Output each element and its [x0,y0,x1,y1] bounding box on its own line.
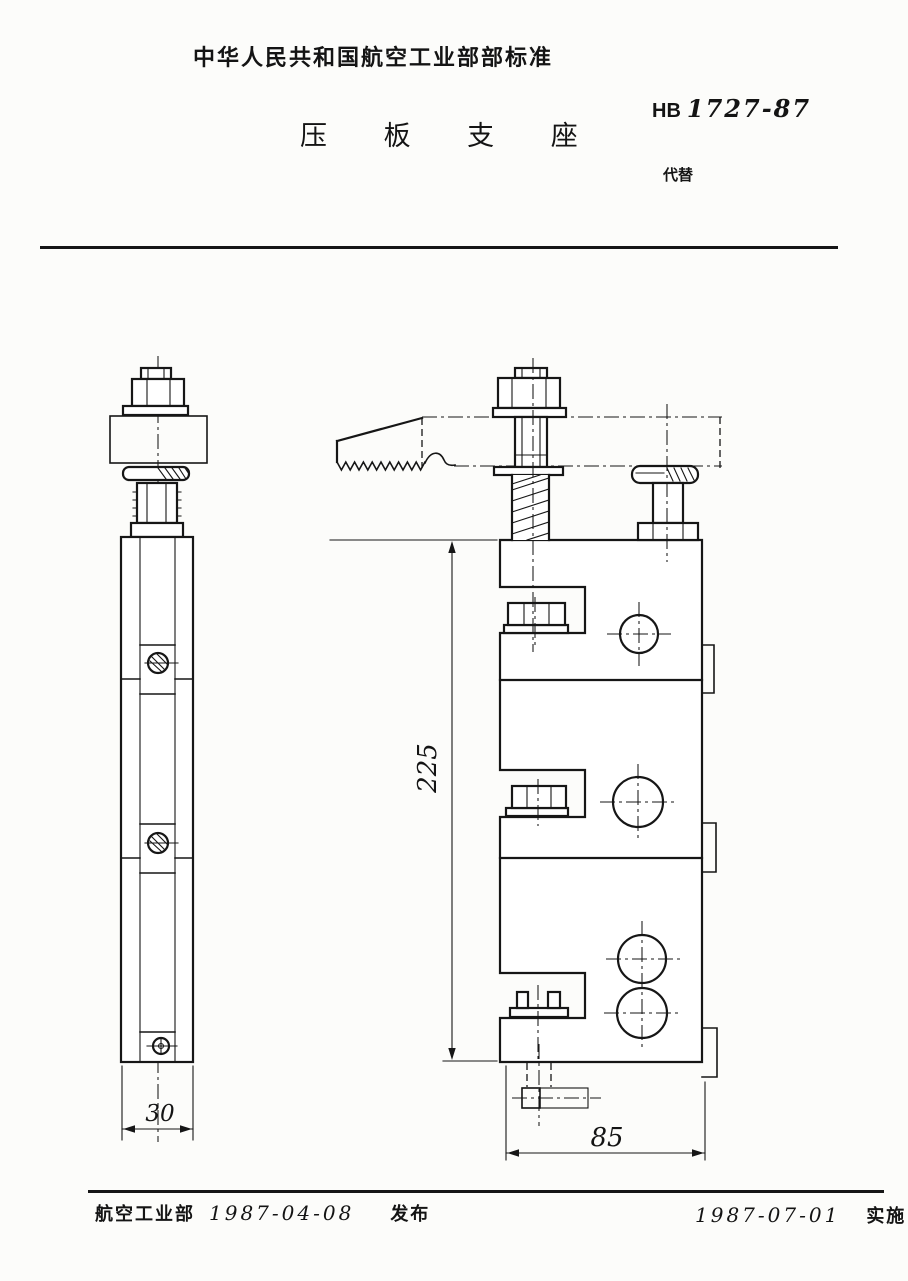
clamp-plate-chain-lines [422,417,722,466]
serrated-clamp-end [337,418,455,470]
interlock-tabs [702,645,717,1077]
clamp-plate-cut-marks [422,417,720,468]
dim-front-width-label: 85 [590,1123,623,1153]
clamp-bolt-side [123,368,188,415]
dim-height-label: 225 [413,743,443,794]
knurled-nut-side [123,467,189,480]
knurled-screw-post [632,466,698,540]
clamp-bolt-front [493,368,566,540]
dimension-85: 85 [506,1066,705,1160]
issue-date: 1987-04-08 [209,1201,354,1225]
dim-side-width-label: 30 [145,1101,174,1127]
footer-issue-block: 航空工业部 1987-04-08 发布 [95,1200,430,1226]
issue-action-label: 发布 [390,1200,430,1226]
footer-implementation-block: 1987-07-01 实施 [695,1202,906,1228]
implementation-date: 1987-07-01 [695,1203,840,1227]
technical-drawing: 30 [0,0,908,1281]
issuing-body: 航空工业部 [95,1200,195,1226]
front-view: 225 85 [330,358,722,1160]
dimension-225: 225 [330,540,497,1061]
threaded-stud-side [131,483,183,537]
footer-divider-rule [88,1190,884,1193]
support-column [121,537,193,1062]
standard-document-page: 中华人民共和国航空工业部部标准 HB 1727-87 代替 压 板 支 座 [0,0,908,1281]
implementation-action-label: 实施 [866,1202,906,1228]
side-view: 30 [110,356,207,1142]
